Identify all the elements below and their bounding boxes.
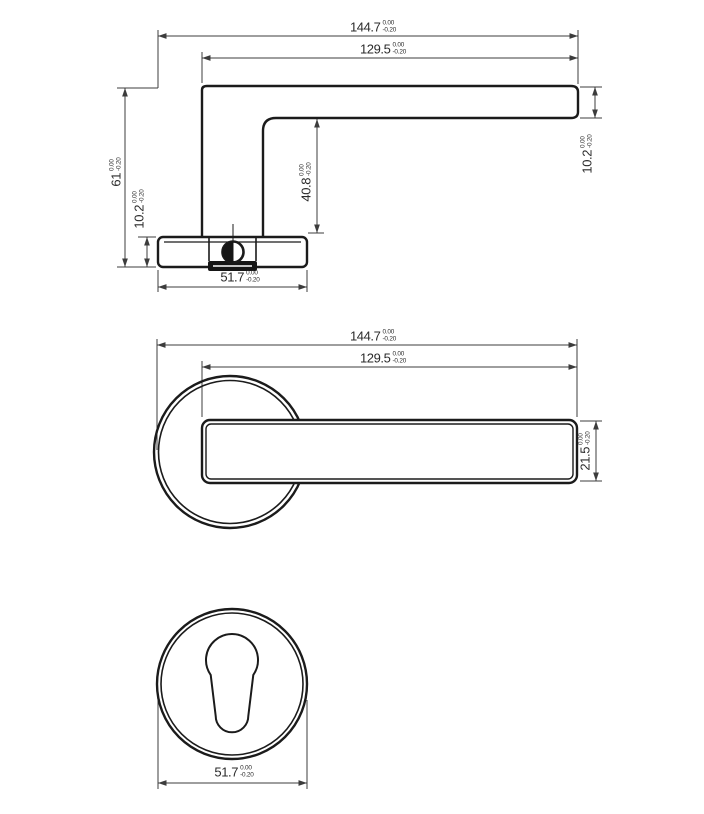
esc-rose-outer-circle [157, 609, 307, 759]
side-dim-lever-thickness: 10.2 0.00 -0.20 [581, 134, 594, 173]
dim-tolerance: 0.00 -0.20 [392, 43, 406, 55]
dim-tolerance: 0.00 -0.20 [392, 352, 406, 364]
dim-value: 21.5 [579, 447, 592, 471]
dim-tolerance: 0.00 -0.20 [240, 766, 254, 778]
dim-tolerance: 0.00 -0.20 [246, 271, 260, 283]
technical-drawing-page: 144.7 0.00 -0.20 129.5 0.00 -0.20 61 0.0… [0, 0, 704, 814]
side-view [117, 30, 602, 292]
side-dim-rose-height: 10.2 0.00 -0.20 [133, 189, 146, 228]
dim-value: 129.5 [360, 43, 391, 56]
dim-value: 61 [110, 173, 123, 187]
side-dim-lever-length: 129.5 0.00 -0.20 [360, 43, 406, 56]
front-dim-lever-length: 129.5 0.00 -0.20 [360, 352, 406, 365]
dim-tolerance: 0.00 -0.20 [300, 162, 312, 176]
dim-value: 51.7 [220, 271, 244, 284]
dim-value: 10.2 [581, 150, 594, 174]
dim-value: 10.2 [133, 205, 146, 229]
side-dim-rose-width: 51.7 0.00 -0.20 [220, 271, 259, 284]
drawing-canvas [0, 0, 704, 814]
side-dim-overall-length: 144.7 0.00 -0.20 [350, 21, 396, 34]
dim-tolerance: 0.00 -0.20 [579, 431, 591, 445]
side-dim-neck-height: 40.8 0.00 -0.20 [300, 162, 313, 201]
dim-value: 129.5 [360, 352, 391, 365]
dim-value: 51.7 [214, 766, 238, 779]
side-dim-overall-height: 61 0.00 -0.20 [110, 157, 123, 186]
side-handle-outline [202, 86, 578, 238]
dim-tolerance: 0.00 -0.20 [382, 330, 396, 342]
dim-tolerance: 0.00 -0.20 [133, 189, 145, 203]
front-lever-outline [202, 420, 577, 483]
front-dim-overall-length: 144.7 0.00 -0.20 [350, 330, 396, 343]
dim-tolerance: 0.00 -0.20 [581, 134, 593, 148]
front-dim-lever-width: 21.5 0.00 -0.20 [579, 431, 592, 470]
dim-value: 40.8 [300, 178, 313, 202]
dim-tolerance: 0.00 -0.20 [110, 157, 122, 171]
dim-value: 144.7 [350, 330, 381, 343]
front-view [154, 339, 602, 528]
dim-value: 144.7 [350, 21, 381, 34]
escutcheon-view [157, 609, 307, 789]
esc-dim-rose-diameter: 51.7 0.00 -0.20 [214, 766, 253, 779]
dim-tolerance: 0.00 -0.20 [382, 21, 396, 33]
esc-keyhole-outline [206, 634, 258, 732]
